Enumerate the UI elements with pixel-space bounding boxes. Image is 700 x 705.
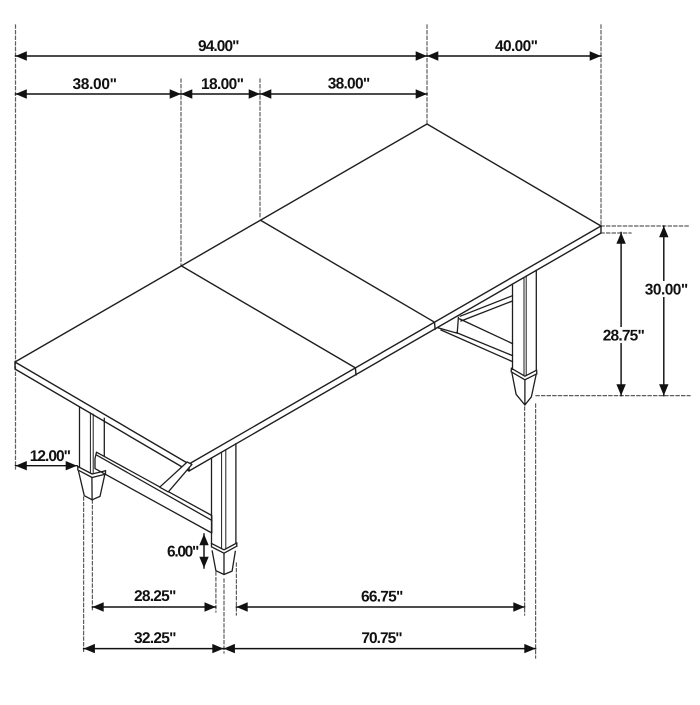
svg-text:12.00": 12.00" (30, 448, 71, 465)
svg-text:28.25": 28.25" (134, 588, 176, 605)
svg-text:32.25": 32.25" (134, 630, 177, 647)
svg-text:6.00": 6.00" (167, 543, 199, 560)
svg-text:66.75": 66.75" (361, 588, 403, 605)
svg-text:40.00": 40.00" (495, 38, 538, 55)
svg-text:18.00": 18.00" (201, 76, 244, 93)
svg-text:28.75": 28.75" (603, 328, 645, 345)
svg-text:70.75": 70.75" (361, 630, 402, 647)
svg-text:38.00": 38.00" (73, 76, 118, 93)
svg-text:30.00": 30.00" (645, 282, 688, 299)
svg-text:38.00": 38.00" (328, 76, 371, 93)
svg-text:94.00": 94.00" (198, 38, 240, 55)
